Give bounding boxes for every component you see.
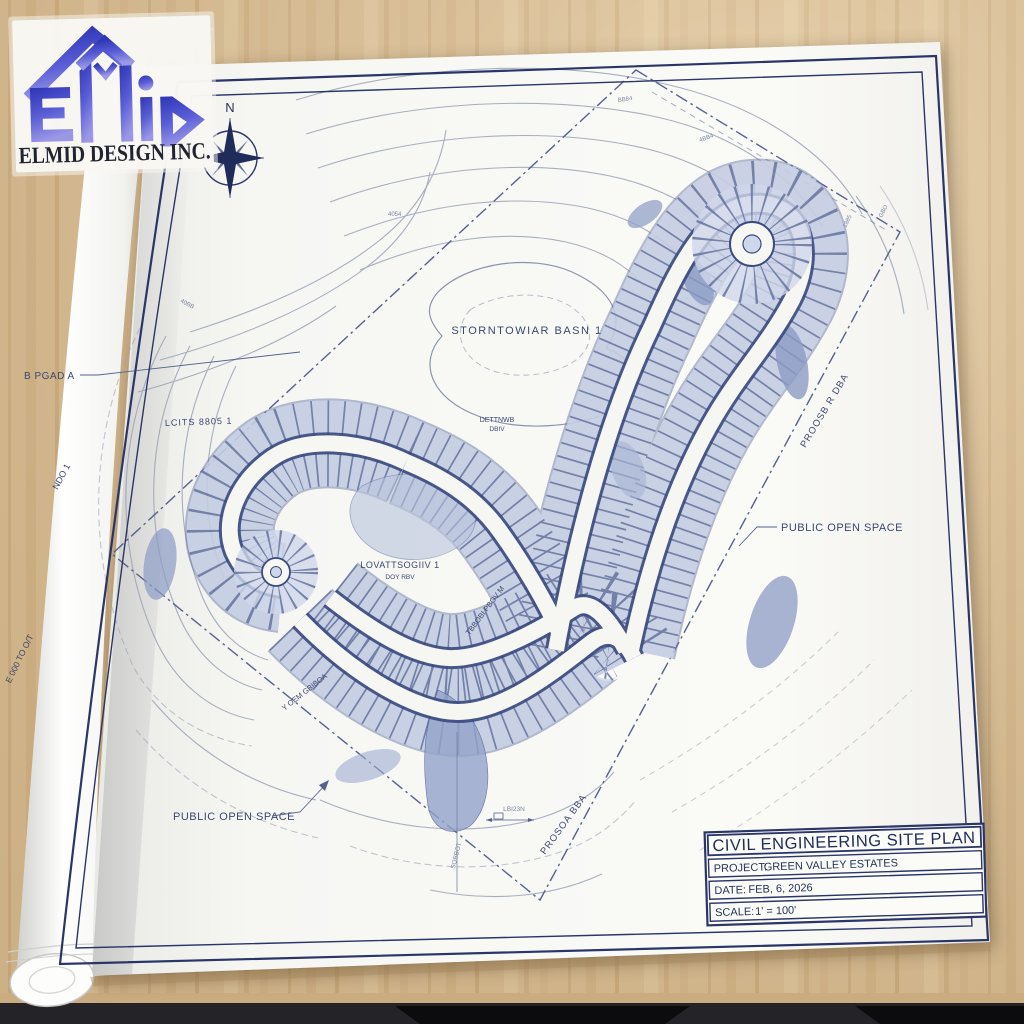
company-name: ELMID DESIGN INC. — [18, 138, 211, 169]
site-plan-photo: STORNTOWIAR BASN 1 DETTNWB DBIV LCITS 88… — [0, 0, 1024, 1024]
stormwater-basin-label: STORNTOWIAR BASN 1 — [451, 325, 602, 337]
date-label: DATE: — [714, 884, 746, 897]
title-block: CIVIL ENGINEERING SITE PLAN PROJECT: GRE… — [705, 824, 987, 926]
logo-letter-m-left — [79, 60, 93, 142]
table-leg-shadow — [855, 1006, 1024, 1024]
photo-of-site-plan: STORNTOWIAR BASN 1 DETTNWB DBIV LCITS 88… — [0, 0, 1024, 1024]
logo-letter-m-right — [119, 65, 133, 141]
north-label: N — [225, 100, 234, 115]
date-value: FEB, 6, 2026 — [748, 882, 813, 896]
public-open-space-right-label: PUBLIC OPEN SPACE — [781, 522, 903, 534]
basin-sub-label: DETTNWB — [480, 417, 515, 424]
tiny-dim-label: LBI23N — [503, 806, 525, 813]
cul-de-sac-north — [712, 204, 792, 284]
table-leg-shadow — [395, 1006, 690, 1024]
basin-sub-label-2: DBIV — [489, 426, 505, 433]
lots-center-label: LOVATTSOGIIV 1 — [360, 560, 439, 570]
logo-letter-i — [140, 97, 153, 141]
lots-center-sub-label: DOY RBV — [385, 574, 415, 581]
scale-value: 1' = 100' — [755, 905, 797, 918]
cul-de-sac-west — [248, 544, 304, 600]
svg-text:4054: 4054 — [388, 212, 402, 218]
road-a-label: B PGAD A — [24, 371, 75, 382]
company-logo: ELMID DESIGN INC. — [8, 11, 218, 176]
project-label: PROJECT: — [714, 861, 768, 875]
scale-label: SCALE: — [715, 906, 754, 919]
public-open-space-left-label: PUBLIC OPEN SPACE — [173, 811, 295, 823]
